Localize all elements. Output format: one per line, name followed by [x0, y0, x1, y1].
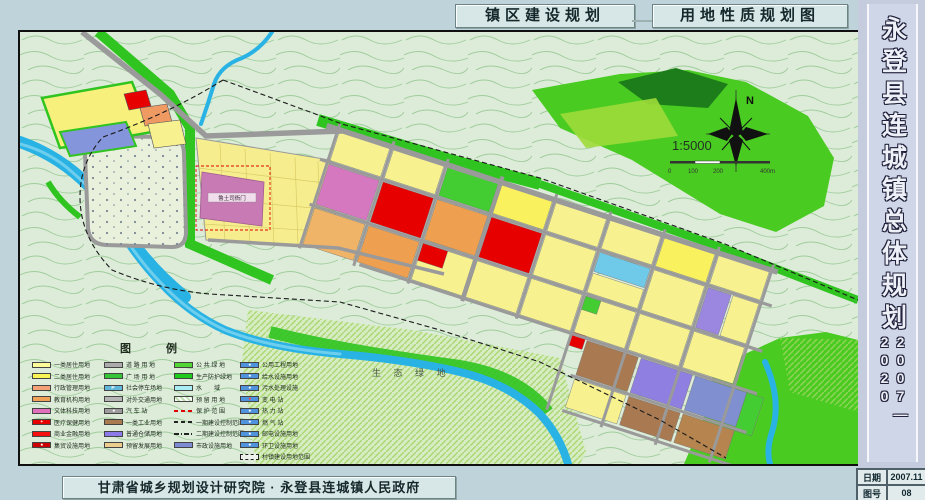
legend-item: 对外交通用地: [104, 394, 174, 406]
legend-item: 文体科技用地: [32, 405, 104, 417]
legend-item: 道 路 用 地: [104, 359, 174, 371]
legend-item: 市政设施用地: [174, 440, 240, 452]
sheet-number-label: 图号: [857, 485, 887, 500]
legend-item: 普通仓储用地: [104, 428, 174, 440]
legend-swatch: ●: [240, 396, 259, 402]
legend-item: ●污水处理设施: [240, 382, 324, 394]
sheet-title-right: 用地性质规划图: [652, 4, 848, 28]
legend-swatch: [104, 362, 123, 368]
svg-text:200: 200: [713, 169, 724, 175]
legend-swatch: [174, 373, 193, 379]
title-connector: [632, 20, 653, 22]
legend-item: 商业金融用地: [32, 428, 104, 440]
legend-item: 村镇建设用地范围: [240, 451, 324, 463]
legend-label: 普通仓储用地: [126, 429, 162, 438]
legend-item: 教育机构用地: [32, 394, 104, 406]
plan-years-vertical: 2007—2020: [877, 334, 909, 462]
legend-label: 教育机构用地: [54, 395, 90, 404]
legend-label: 一类居住用地: [54, 360, 90, 369]
legend-swatch: [174, 433, 193, 435]
legend-swatch: ●: [240, 385, 259, 391]
legend-item: 公 共 绿 地: [174, 359, 240, 371]
legend-label: 变 电 站: [262, 395, 283, 404]
title-block-sidebar: 永登县连城镇总体规划 2007—2020: [858, 0, 925, 500]
legend-item: 一期建设控制范围: [174, 417, 240, 429]
scale-text: 1:5000: [672, 138, 712, 153]
legend-label: 环卫设施用地: [262, 441, 298, 450]
legend-swatch: ●: [240, 431, 259, 437]
legend-swatch: ●: [240, 442, 259, 448]
legend-item: ●公用工程用地: [240, 359, 324, 371]
yamen-label: 鲁土司衙门: [218, 194, 246, 202]
legend-item: ●环卫设施用地: [240, 440, 324, 452]
legend-label: 村镇建设用地范围: [262, 452, 310, 461]
legend-swatch: [174, 421, 193, 423]
legend-swatch: [104, 442, 123, 448]
plan-title-vertical: 永登县连城镇总体规划: [875, 16, 911, 336]
village-area: [85, 136, 186, 247]
sheet-number-value: 08: [887, 485, 925, 500]
legend-swatch: [174, 385, 193, 391]
legend-swatch: [32, 396, 51, 402]
legend-swatch: [32, 408, 51, 414]
legend-item: ●邮电设施用地: [240, 428, 324, 440]
legend-swatch: ●: [240, 408, 259, 414]
legend-item: ●热 力 站: [240, 405, 324, 417]
legend-item: P社会停车场地: [104, 382, 174, 394]
legend-label: 生产防护绿地: [196, 372, 232, 381]
legend-item: 二期建设控制范围: [174, 428, 240, 440]
legend-item: ●变 电 站: [240, 394, 324, 406]
legend-swatch: [32, 373, 51, 379]
legend-item: 二类居住用地: [32, 371, 104, 383]
legend-swatch: [174, 410, 193, 412]
legend-item: 水 域: [174, 382, 240, 394]
legend-label: 预留发展用地: [126, 441, 162, 450]
legend-label: 道 路 用 地: [126, 360, 155, 369]
legend-swatch: ●: [240, 362, 259, 368]
legend-swatch: ●: [240, 373, 259, 379]
date-value: 2007.11: [887, 469, 925, 485]
sidebar-column: 永登县连城镇总体规划 2007—2020: [867, 4, 918, 462]
legend-swatch: [104, 396, 123, 402]
legend-columns: 一类居住用地二类居住用地行政管理用地教育机构用地文体科技用地+医疗保健用地商业金…: [32, 359, 324, 463]
legend-item: 保 护 范 围: [174, 405, 240, 417]
planning-sheet: 鲁土司衙门: [0, 0, 925, 500]
legend-label: 汽 车 站: [126, 406, 147, 415]
legend-item: ●燃 气 站: [240, 417, 324, 429]
legend-label: 公用工程用地: [262, 360, 298, 369]
legend-swatch: ●: [240, 419, 259, 425]
legend-label: 市政设施用地: [196, 441, 232, 450]
legend-label: 一类工业用地: [126, 418, 162, 427]
legend-swatch: ●: [104, 408, 123, 414]
credit-bar: 甘肃省城乡规划设计研究院 · 永登县连城镇人民政府: [62, 476, 456, 499]
legend-swatch: ●: [32, 442, 51, 448]
legend-swatch: +: [32, 419, 51, 425]
sheet-title-left: 镇区建设规划: [455, 4, 635, 28]
legend-item: 预 留 用 地: [174, 394, 240, 406]
legend-item: 一类居住用地: [32, 359, 104, 371]
legend-item: 一类工业用地: [104, 417, 174, 429]
legend-label: 燃 气 站: [262, 418, 283, 427]
eco-green-label: 生 态 绿 地: [372, 367, 451, 378]
svg-text:100: 100: [688, 169, 699, 175]
legend-item: +医疗保健用地: [32, 417, 104, 429]
legend-label: 热 力 站: [262, 406, 283, 415]
legend-label: 商业金融用地: [54, 429, 90, 438]
legend-swatch: [32, 385, 51, 391]
legend-label: 对外交通用地: [126, 395, 162, 404]
legend-item: 预留发展用地: [104, 440, 174, 452]
date-label: 日期: [857, 469, 887, 485]
legend-item: 生产防护绿地: [174, 371, 240, 383]
legend-swatch: [174, 396, 193, 402]
legend-label: 水 域: [196, 383, 220, 392]
legend-item: 行政管理用地: [32, 382, 104, 394]
legend-swatch: [240, 454, 259, 460]
legend-label: 给水设施用地: [262, 372, 298, 381]
legend-label: 一期建设控制范围: [196, 418, 244, 427]
legend-label: 集贸设施用地: [54, 441, 90, 450]
legend-label: 邮电设施用地: [262, 429, 298, 438]
legend-swatch: [104, 373, 123, 379]
map-panel: 鲁土司衙门: [18, 30, 860, 466]
legend-swatch: [104, 419, 123, 425]
legend-label: 社会停车场地: [126, 383, 162, 392]
legend-swatch: [174, 362, 193, 368]
legend-item: ●集贸设施用地: [32, 440, 104, 452]
north-label: N: [746, 95, 754, 107]
legend-label: 医疗保健用地: [54, 418, 90, 427]
legend-title: 图 例: [32, 340, 324, 356]
legend-item: ●给水设施用地: [240, 371, 324, 383]
legend-label: 公 共 绿 地: [196, 360, 225, 369]
legend-label: 污水处理设施: [262, 383, 298, 392]
legend-label: 预 留 用 地: [196, 395, 225, 404]
legend-label: 广 场 用 地: [126, 372, 155, 381]
legend-swatch: [32, 362, 51, 368]
legend-label: 行政管理用地: [54, 383, 90, 392]
legend-label: 文体科技用地: [54, 406, 90, 415]
legend-swatch: [104, 431, 123, 437]
map-legend: 图 例 一类居住用地二类居住用地行政管理用地教育机构用地文体科技用地+医疗保健用…: [32, 340, 324, 463]
legend-label: 保 护 范 围: [196, 406, 225, 415]
legend-label: 二类居住用地: [54, 372, 90, 381]
legend-item: 广 场 用 地: [104, 371, 174, 383]
legend-swatch: P: [104, 385, 123, 391]
sheet-info-table: 日期 2007.11 图号 08: [856, 468, 925, 500]
svg-text:400m: 400m: [760, 169, 775, 175]
legend-swatch: [174, 442, 193, 448]
legend-item: ●汽 车 站: [104, 405, 174, 417]
legend-label: 二期建设控制范围: [196, 429, 244, 438]
legend-swatch: [32, 431, 51, 437]
